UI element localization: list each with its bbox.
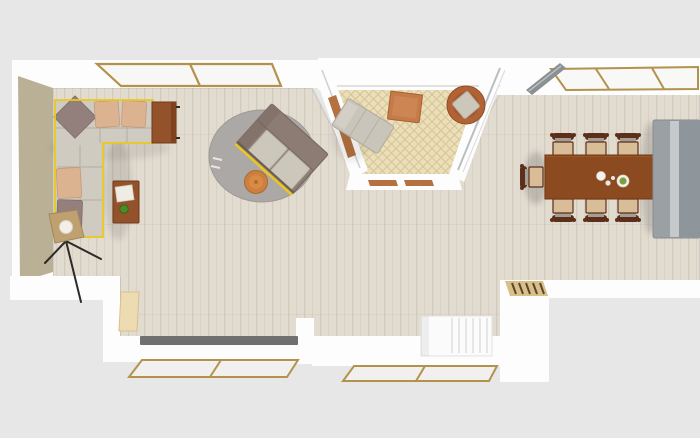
staircase[interactable] [421, 316, 492, 356]
wall-bottom-right [543, 280, 700, 298]
chair-seat [618, 142, 638, 156]
chair-horn [550, 218, 554, 222]
dining-chair-head[interactable] [520, 164, 543, 190]
chair-horn [572, 133, 576, 137]
track-strip [404, 180, 434, 186]
track-strip [368, 180, 398, 186]
chair-horn [583, 218, 587, 222]
chair-horn [615, 218, 619, 222]
wall-jut-bottom-left [10, 276, 110, 300]
pillow [56, 167, 82, 198]
chair-seat [553, 142, 573, 156]
window-top-left[interactable] [97, 64, 281, 86]
pillow [94, 100, 120, 128]
chair-horn [637, 218, 641, 222]
door-panel[interactable] [119, 292, 139, 331]
floor-plan-canvas[interactable] [0, 0, 700, 438]
wall-pier [296, 318, 314, 364]
chair-seat [586, 142, 606, 156]
ottoman[interactable] [387, 91, 422, 123]
chair-seat [529, 167, 543, 187]
pouf-button [254, 180, 258, 184]
dining-chair[interactable] [550, 133, 576, 156]
window-glass [551, 67, 698, 90]
sideboard-side [171, 102, 176, 143]
dining-chair[interactable] [615, 199, 641, 222]
pillow [121, 100, 146, 127]
notebook [115, 185, 134, 202]
chair-horn [572, 218, 576, 222]
coffee-table[interactable] [113, 181, 139, 223]
window-bottom-middle[interactable] [343, 366, 497, 381]
window-glass [97, 64, 281, 86]
chair-horn [637, 133, 641, 137]
stair-shadow [421, 316, 429, 356]
wall-balcony-threshold [346, 174, 462, 190]
dining-chair[interactable] [615, 133, 641, 156]
window-glass [129, 360, 298, 377]
floor-plan-viewport[interactable] [0, 0, 700, 438]
chair-horn [520, 186, 524, 190]
unit-right-face [679, 121, 700, 237]
chair-horn [605, 133, 609, 137]
doormat[interactable] [505, 281, 548, 296]
dining-chair[interactable] [583, 133, 609, 156]
chair-horn [615, 133, 619, 137]
radiator[interactable] [140, 336, 298, 345]
dining-chair[interactable] [583, 199, 609, 222]
ottoman-top [392, 96, 418, 119]
sideboard[interactable] [152, 102, 180, 143]
small-dish [611, 176, 615, 180]
wall-jut-vertical [103, 276, 120, 346]
bowl [597, 172, 606, 181]
stair-landing [421, 316, 492, 356]
unit-highlight [670, 121, 679, 237]
apple [120, 205, 128, 213]
salad [619, 177, 626, 184]
kitchen-unit[interactable] [653, 120, 700, 238]
lamp-bulb [60, 221, 73, 234]
accent-wall[interactable] [18, 76, 53, 282]
window-top-right[interactable] [551, 67, 698, 90]
chair-seat [586, 199, 606, 213]
dining-chair[interactable] [550, 199, 576, 222]
chair-horn [605, 218, 609, 222]
chair-horn [550, 133, 554, 137]
window-bottom-left[interactable] [129, 360, 298, 377]
chair-seat [553, 199, 573, 213]
chair-seat [618, 199, 638, 213]
armchair[interactable] [447, 86, 485, 124]
pouf[interactable] [245, 171, 268, 194]
small-dish [605, 180, 610, 185]
chair-horn [520, 164, 524, 168]
chair-horn [583, 133, 587, 137]
dining-table[interactable] [545, 155, 659, 199]
